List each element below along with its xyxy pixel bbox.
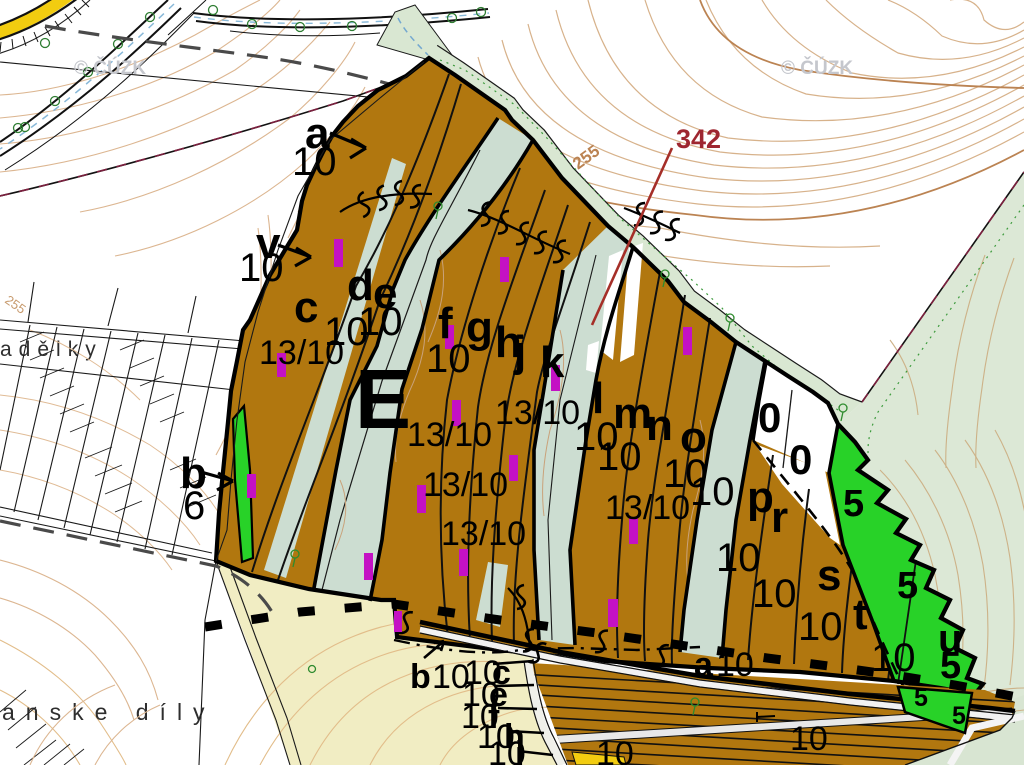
svg-text:anske díly: anske díly	[2, 699, 216, 725]
svg-text:5: 5	[914, 684, 928, 712]
svg-text:10: 10	[292, 140, 337, 184]
svg-text:0: 0	[758, 394, 781, 441]
svg-text:10: 10	[752, 572, 797, 616]
svg-text:© ČÚZK: © ČÚZK	[781, 57, 853, 79]
svg-text:s: s	[817, 551, 841, 600]
svg-text:f: f	[488, 698, 500, 736]
svg-text:6: 6	[183, 484, 205, 528]
svg-text:13/10: 13/10	[423, 466, 508, 504]
svg-text:5: 5	[843, 483, 864, 525]
svg-text:5: 5	[940, 645, 961, 687]
svg-text:E: E	[355, 352, 411, 446]
svg-text:10: 10	[596, 735, 634, 765]
svg-text:k: k	[540, 338, 565, 387]
svg-text:5: 5	[897, 565, 918, 607]
svg-text:13/10: 13/10	[407, 416, 492, 454]
svg-text:10: 10	[871, 636, 916, 680]
svg-text:342: 342	[676, 124, 721, 154]
svg-text:13/10: 13/10	[605, 489, 690, 527]
svg-text:c: c	[294, 283, 318, 332]
svg-text:10: 10	[790, 720, 828, 758]
svg-text:b: b	[410, 658, 431, 696]
svg-text:j: j	[513, 327, 526, 376]
svg-text:10: 10	[690, 470, 735, 514]
svg-text:n: n	[646, 401, 673, 450]
svg-text:r: r	[771, 493, 788, 542]
svg-text:10: 10	[426, 337, 471, 381]
svg-text:10: 10	[358, 300, 403, 344]
svg-text:p: p	[747, 473, 774, 522]
svg-text:13/10: 13/10	[259, 334, 344, 372]
svg-text:10: 10	[239, 246, 284, 290]
svg-text:© ČÚZK: © ČÚZK	[74, 57, 146, 79]
svg-text:a: a	[694, 646, 714, 684]
svg-text:0: 0	[789, 436, 812, 483]
svg-text:j: j	[514, 735, 524, 765]
svg-text:10: 10	[597, 435, 642, 479]
svg-text:10: 10	[798, 605, 843, 649]
svg-text:5: 5	[952, 702, 966, 730]
svg-text:t: t	[853, 590, 868, 639]
svg-text:13/10: 13/10	[495, 394, 580, 432]
svg-text:10: 10	[716, 646, 754, 684]
svg-text:13/10: 13/10	[441, 515, 526, 553]
